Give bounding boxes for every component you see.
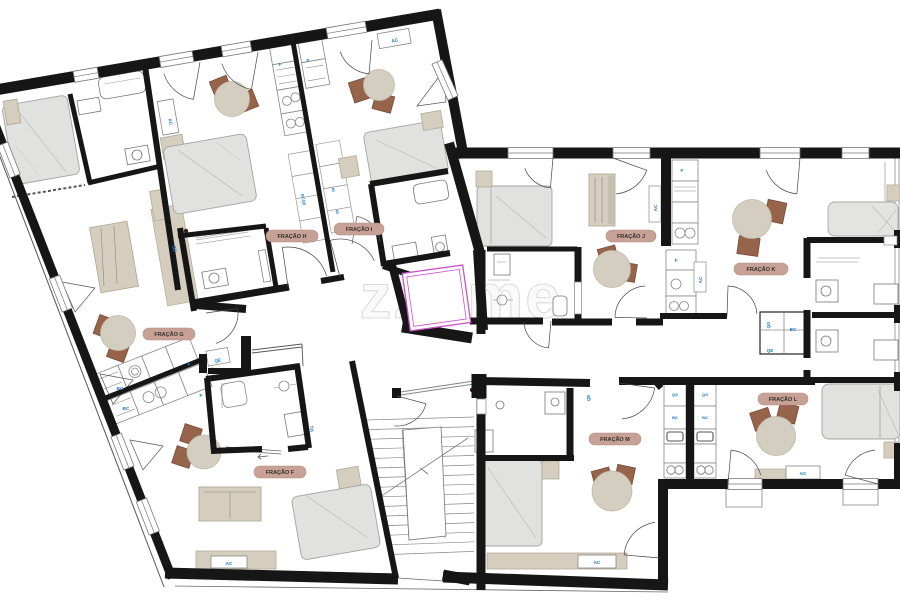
svg-text:AC: AC: [698, 276, 703, 283]
svg-text:F: F: [200, 393, 203, 399]
svg-text:F: F: [279, 62, 282, 68]
svg-text:QG: QG: [672, 392, 678, 397]
svg-text:QG: QG: [309, 425, 315, 432]
svg-text:F: F: [681, 168, 684, 174]
svg-text:BC: BC: [702, 415, 708, 420]
svg-text:AC: AC: [226, 561, 233, 567]
svg-text:AC: AC: [800, 471, 807, 477]
svg-text:FRAÇÃO F: FRAÇÃO F: [266, 469, 295, 476]
svg-text:QE: QE: [767, 348, 774, 353]
svg-text:BC: BC: [790, 327, 797, 332]
svg-text:AC: AC: [594, 560, 601, 566]
svg-text:FRAÇÃO G: FRAÇÃO G: [154, 331, 183, 338]
svg-text:F: F: [675, 258, 678, 263]
svg-text:F: F: [188, 362, 191, 368]
svg-text:FRAÇÃO K: FRAÇÃO K: [746, 266, 775, 273]
svg-text:AC: AC: [653, 204, 658, 211]
svg-text:FRAÇÃO M: FRAÇÃO M: [600, 436, 630, 443]
svg-text:FRAÇÃO J: FRAÇÃO J: [617, 233, 645, 240]
svg-text:BC: BC: [117, 386, 124, 392]
svg-text:FRAÇÃO L: FRAÇÃO L: [769, 396, 798, 403]
svg-text:QE: QE: [586, 395, 591, 401]
svg-text:F: F: [307, 58, 310, 64]
svg-text:QG: QG: [702, 392, 708, 397]
svg-text:BC: BC: [672, 415, 678, 420]
svg-text:BC: BC: [123, 406, 130, 412]
svg-text:FRAÇÃO H: FRAÇÃO H: [277, 233, 306, 240]
svg-text:QG: QG: [766, 321, 771, 328]
svg-text:FRAÇÃO I: FRAÇÃO I: [346, 226, 373, 233]
